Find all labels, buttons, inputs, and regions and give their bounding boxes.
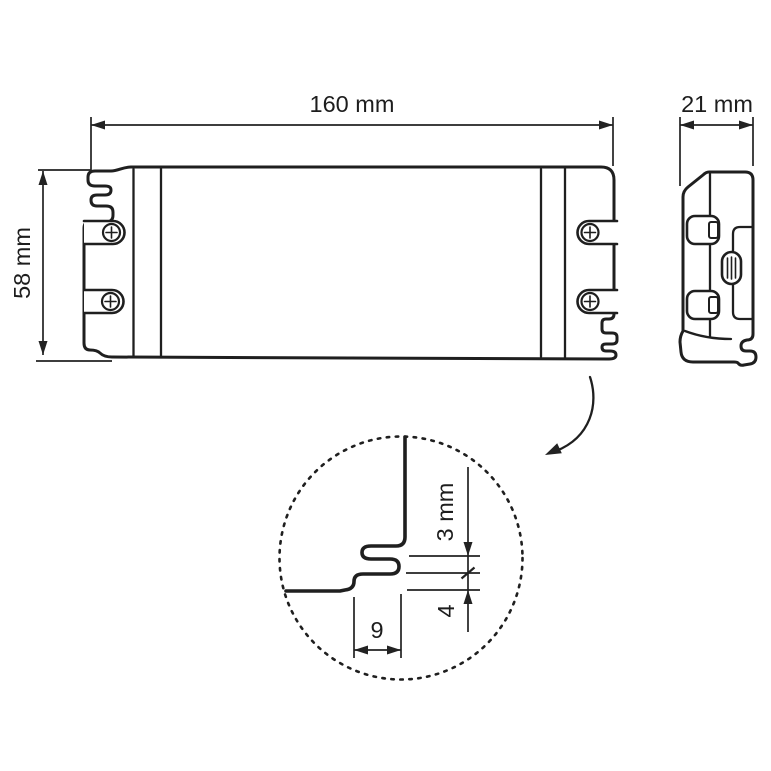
cable-slot-icon (722, 252, 741, 284)
side-view-drawing (680, 172, 756, 365)
technical-drawing-canvas: 160 mm 58 mm 21 (0, 0, 771, 771)
arrowhead-left (354, 646, 368, 655)
front-view-drawing (84, 167, 617, 359)
screw-icon (582, 224, 599, 241)
arrowhead-up (464, 590, 473, 604)
arrowhead-down (464, 542, 473, 556)
detail-view: 3 mm 4 9 (280, 437, 523, 680)
dim-label-4: 4 (433, 604, 459, 617)
arrowhead-bottom (39, 341, 48, 355)
mounting-clip-icon (687, 216, 719, 244)
dimension-width-160: 160 mm (38, 91, 613, 170)
dim-label-58mm: 58 mm (9, 227, 35, 299)
arrowhead-left (91, 121, 105, 130)
arrowhead-right (387, 646, 401, 655)
detail-dim-9: 9 (354, 594, 401, 658)
dim-label-160mm: 160 mm (310, 91, 395, 117)
mounting-clip-icon (687, 291, 719, 319)
arrowhead (545, 443, 562, 455)
arrowhead-right (599, 121, 613, 130)
screw-icon (102, 293, 119, 310)
screw-icon (103, 224, 120, 241)
detail-callout-arrow (545, 377, 593, 455)
enclosure-side-outline (680, 172, 756, 365)
extension-line-left (38, 117, 91, 170)
hook-profile (286, 437, 405, 591)
arrowhead-top (39, 171, 48, 185)
dimensional-drawing: 160 mm 58 mm 21 (0, 0, 771, 771)
dim-label-21mm: 21 mm (681, 91, 753, 117)
detail-dim-3mm-and-4: 3 mm 4 (406, 467, 480, 632)
dim-label-3mm: 3 mm (432, 483, 458, 542)
screw-icon (582, 293, 599, 310)
arrowhead-right (739, 121, 753, 130)
enclosure-front-outline (84, 167, 617, 359)
arrow-curve (556, 377, 593, 451)
dim-label-9: 9 (370, 617, 383, 643)
arrowhead-left (680, 121, 694, 130)
